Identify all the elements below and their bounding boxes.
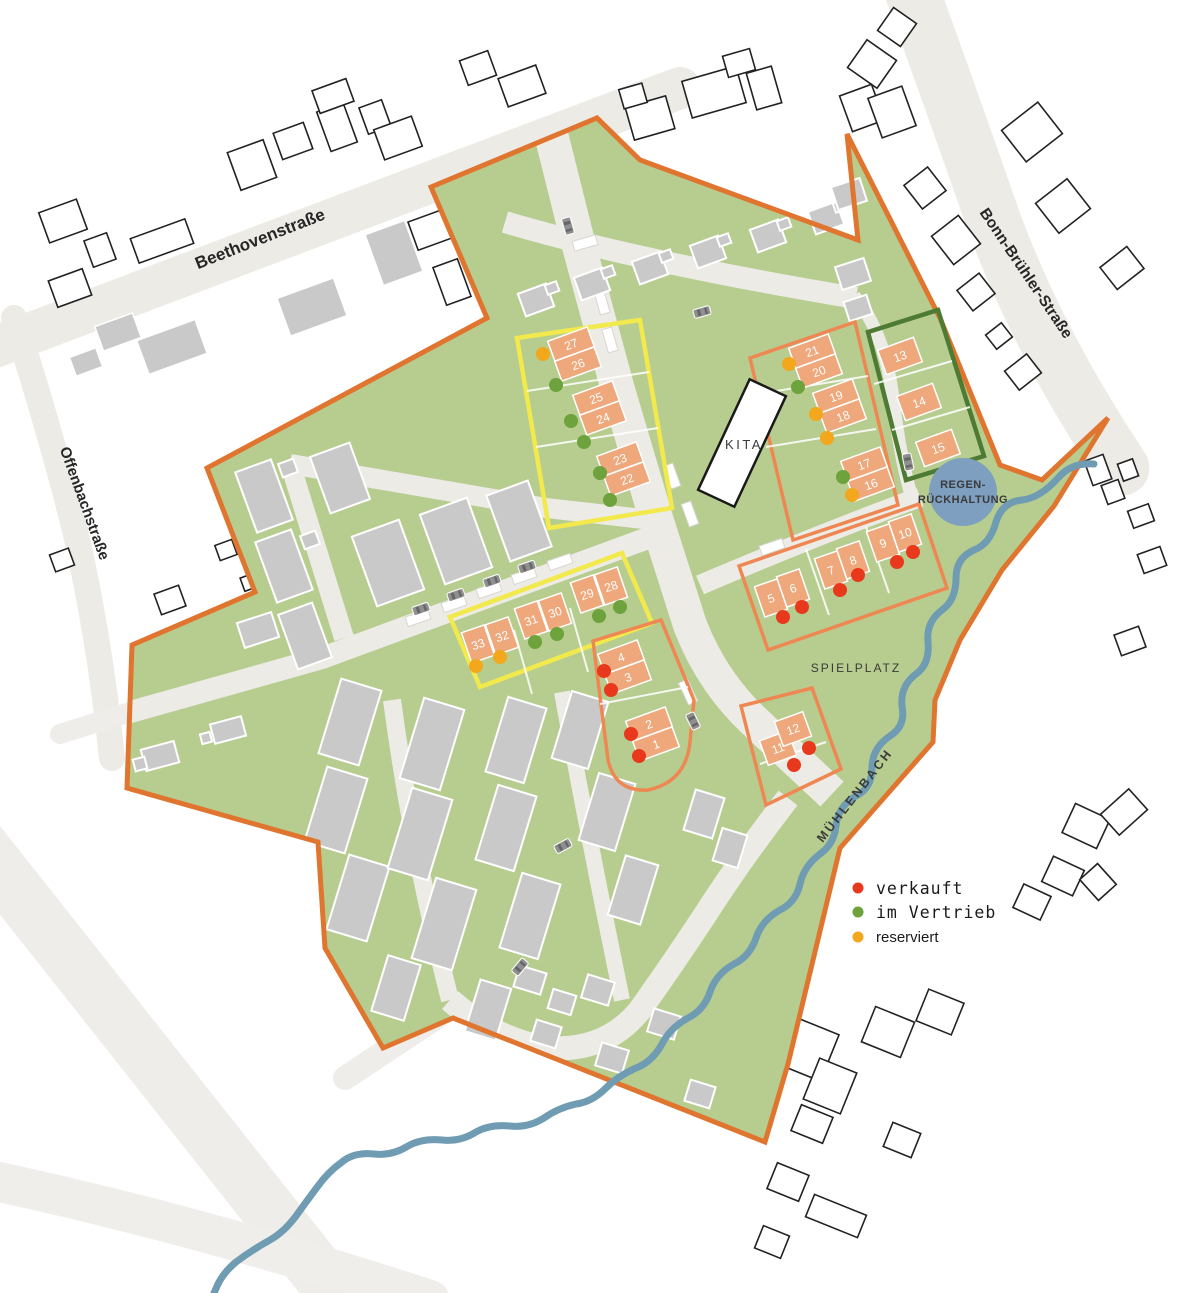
status-dot-24-im_vertrieb [577,435,591,449]
status-dot-4-verkauft [597,664,611,678]
legend: verkauft im Vertrieb reserviert [853,879,997,946]
status-dot-1-verkauft [632,749,646,763]
building [755,1226,790,1259]
legend-dot-verkauft-icon [853,883,864,894]
status-dot-30-im_vertrieb [550,627,564,641]
status-dot-18-reserviert [820,431,834,445]
status-dot-5-verkauft [776,610,790,624]
building [916,989,964,1035]
status-dot-6-verkauft [795,600,809,614]
status-dot-27-reserviert [536,347,550,361]
building [848,40,897,88]
status-dot-9-verkauft [890,555,904,569]
building [137,319,208,374]
building [1062,803,1110,848]
legend-item-verkauft: verkauft [853,879,964,898]
building [1128,504,1155,528]
building [69,348,102,376]
retention-label-2: RÜCKHALTUNG [918,493,1008,506]
status-dot-31-im_vertrieb [528,635,542,649]
status-dot-33-reserviert [469,659,483,673]
building [791,1105,833,1144]
building [746,66,781,110]
building [227,140,276,191]
legend-label-verkauft: verkauft [876,879,963,898]
building [133,757,148,772]
site-plan-page: KITA REGEN- RÜCKHALTUNG 1234567891011121… [0,0,1200,1293]
status-dot-12-verkauft [802,741,816,755]
building [1013,884,1051,920]
building [1114,626,1146,656]
status-dot-21-reserviert [782,357,796,371]
building [883,1122,921,1157]
status-dot-20-im_vertrieb [791,380,805,394]
building [273,122,313,159]
status-dot-25-im_vertrieb [564,414,578,428]
building [1101,789,1148,835]
building [1100,247,1144,290]
kita-label: KITA [725,437,763,452]
building [312,79,354,114]
status-dot-26-im_vertrieb [549,378,563,392]
building [459,51,496,86]
legend-dot-reserviert-icon [853,932,864,943]
status-dot-10-verkauft [906,545,920,559]
status-dot-8-verkauft [851,568,865,582]
building [84,233,116,268]
building [1042,856,1085,896]
building [986,323,1013,349]
building [39,199,88,243]
building [806,1194,867,1237]
building [1080,864,1117,901]
status-dot-3-verkauft [604,683,618,697]
building [1036,179,1091,234]
status-dot-16-reserviert [845,488,859,502]
status-dot-7-verkauft [833,583,847,597]
status-dot-32-reserviert [493,650,507,664]
building [904,167,946,209]
building [861,1007,914,1058]
status-dot-28-im_vertrieb [613,600,627,614]
sw-road-2 [0,1180,430,1293]
legend-label-reserviert: reserviert [876,929,939,946]
legend-item-im-vertrieb: im Vertrieb [853,903,997,922]
building [277,278,347,336]
area-label-spielplatz: SPIELPLATZ [811,661,901,675]
status-dot-2-verkauft [624,727,638,741]
building [200,732,212,744]
status-dot-23-im_vertrieb [593,466,607,480]
building [767,1163,809,1202]
legend-dot-im-vertrieb-icon [853,907,864,918]
retention-label-1: REGEN- [940,479,986,491]
status-dot-17-im_vertrieb [836,470,850,484]
building [498,65,546,107]
status-dot-11-verkauft [787,758,801,772]
retention-circle [929,458,997,526]
status-dot-22-im_vertrieb [603,493,617,507]
status-dot-19-reserviert [809,407,823,421]
building [1002,102,1063,162]
building [1137,546,1166,573]
legend-label-im-vertrieb: im Vertrieb [876,903,996,922]
site-plan-map: KITA REGEN- RÜCKHALTUNG 1234567891011121… [0,0,1200,1293]
status-dot-29-im_vertrieb [592,609,606,623]
legend-item-reserviert: reserviert [853,929,940,946]
building [154,585,186,615]
